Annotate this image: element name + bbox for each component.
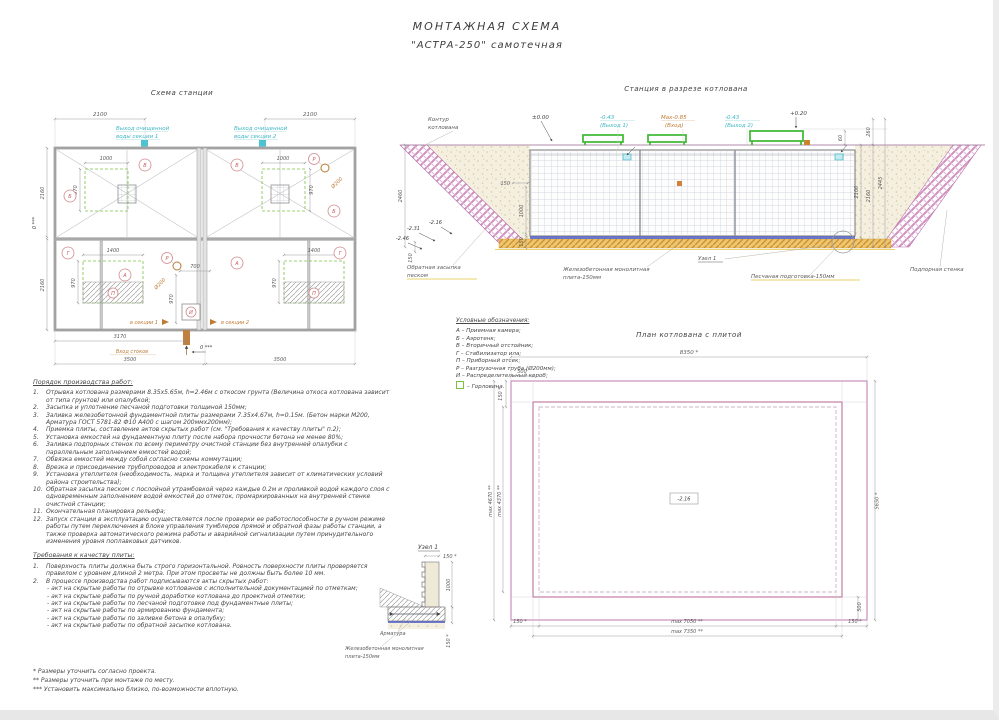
chamber-letter: Б [68,194,72,200]
rebar-label: Арматура [379,631,406,637]
dim-label: 3170 [114,334,127,340]
slab-label2: плита-150мм [563,275,601,281]
dim-label: 150 [408,253,414,263]
legend-title: Условные обозначения: [456,318,598,326]
station-plan-title: Схема станции [82,89,282,97]
work-order-item: 7. Обвязка емкостей между собой согласно… [33,456,395,463]
dim-label: 1000 [519,205,525,218]
footnotes: * Размеры уточнить согласно проекта.** Р… [33,667,433,694]
dim-label: 3500 [274,357,287,363]
covers [583,131,803,145]
inlet-pipe [183,330,190,345]
sheet-title: МОНТАЖНАЯ СХЕМА [287,20,687,33]
item-text: Приемка плиты, составление актов скрытых… [46,426,395,433]
dim-label: 2100 [854,186,860,199]
plan-dim-bottom: 3170 0 *** Вход стоков 3500 3500 [55,330,355,364]
work-order-item: 3. Заливка железобетонной фундаментной п… [33,412,395,427]
manhole-cover [648,135,686,142]
inlet-marker [677,181,682,186]
retaining-wall-label: Подпорная стенка [910,267,964,273]
item-text: Отрывка котлована размерами 8.35х5.65м, … [46,389,395,404]
chamber-letter: А [234,261,239,267]
dim-label: 2160 [40,279,46,292]
item-number: 2. [33,578,46,585]
dim-label: 1400 [308,248,321,254]
dim-label: 970 [309,185,315,195]
dim-label: 1000 [277,156,290,162]
discharge-pipe [321,164,329,172]
item-text: Установка емкостей на фундаментную плиту… [46,434,395,441]
sheet-subtitle: "АСТРА-250" самотечная [287,40,687,51]
work-order-item: 6. Заливка подпорных стенок по всему пер… [33,441,395,456]
foundation-slab [530,236,855,239]
dim-label: 150 * [443,554,457,560]
item-text: Заливка железобетонной фундаментной плит… [46,412,395,427]
station-plan: 2100 2100 Выход очищенной воды секции 1 … [30,103,370,385]
retaining-wall-section [425,562,439,607]
dim-label: max 7350 ** [671,629,703,635]
drawing-sheet: МОНТАЖНАЯ СХЕМА "АСТРА-250" самотечная С… [0,0,999,720]
act-item: - акт на скрытые работы по обратной засы… [47,622,395,629]
item-number: 11. [33,508,46,515]
item-text: Засыпка и уплотнение песчаной подготовки… [46,404,395,411]
station-plan-drawing: 2100 2100 Выход очищенной воды секции 1 … [30,103,370,381]
dim-label: 260 [866,127,872,137]
dim-label: 970 [169,294,175,304]
level-label: -2.16 [429,220,442,226]
footnote: * Размеры уточнить согласно проекта. [33,667,433,676]
node-slab-label: Железобетонная монолитная [344,646,424,652]
dim-label: 150 * [848,619,862,625]
work-order-item: 11. Окончательная планировка рельефа; [33,508,395,515]
level-label: -2.31 [407,226,420,232]
item-number: 4. [33,426,46,433]
pit-plan-drawing: 8350 * 500 150 * max 4670 ** max 4370 **… [490,333,995,668]
footnote: ** Размеры уточнить при монтаже по месту… [33,676,433,685]
dim-label: 2100 [93,112,107,118]
act-item: - акт на скрытые работы по отрывке котло… [47,585,395,592]
act-item: - акт на скрытые работы по заливке бетон… [47,615,395,622]
plan-dim-top: 2100 2100 [55,112,355,146]
dim-label: 970 [71,278,77,288]
contour-label: Контур [428,117,449,123]
dim-label: 8350 * [680,350,699,356]
contour-label2: котлована [428,125,459,131]
work-order-item: 1. Отрывка котлована размерами 8.35х5.65… [33,389,395,404]
outlet2-marker [835,154,843,160]
dim-label: 1000 [100,156,113,162]
item-number: 12. [33,516,46,546]
work-order-list: 1. Отрывка котлована размерами 8.35х5.65… [33,389,395,545]
item-text: Запуск станции в эксплуатацию осуществля… [46,516,395,546]
slab-bottom-line [388,621,445,623]
outlet1-label: Выход очищенной [116,126,170,132]
level-plus020: +0.20 [790,111,807,117]
zero-mark: 0 *** [200,345,213,351]
item-text: В процессе производства работ подписываю… [46,578,395,585]
work-order-item: 9. Установка утеплителя (необходимость, … [33,471,395,486]
work-order-item: 8. Врезка и присоединение трубопроводов … [33,464,395,471]
sand-under-slab [388,623,445,629]
in-name: (Вход) [665,123,684,129]
item-number: 9. [33,471,46,486]
pit-plan: 8350 * 500 150 * max 4670 ** max 4370 **… [490,333,995,672]
item-text: Врезка и присоединение трубопроводов и э… [46,464,395,471]
item-number: 7. [33,456,46,463]
dim-label: 500 [857,602,863,612]
dim-label: 150 [519,237,525,247]
dim-label: 60 [838,135,844,141]
plan-outlets: Выход очищенной воды секции 1 Выход очищ… [116,126,288,149]
cross-section: Контур котлована ±0.00 -0.43 (Выход 1) M… [395,95,995,309]
manhole-swatch [456,381,464,389]
work-order-item: 4. Приемка плиты, составление актов скры… [33,426,395,433]
dim-label: max 4370 ** [497,485,503,517]
section-title: Станция в разрезе котлована [586,85,786,93]
quality-item: 2. В процессе производства работ подписы… [33,578,395,585]
chamber-letter: Р [165,256,168,262]
dim-label: 3500 [124,357,137,363]
work-order-title: Порядок производства работ: [33,379,395,387]
dim-label: 500 [517,369,527,375]
dim-label: 700 [190,264,200,270]
chamber-letter: В [143,163,147,169]
dim-label: 2460 [398,190,404,203]
outlet1-level: -0.43 [600,115,615,121]
chamber-letter: П [111,291,115,297]
backfill-label2: песком [407,273,428,279]
outlet2-level: -0.43 [725,115,740,121]
level-zero: ±0.00 [532,115,549,121]
inlet-stub [804,140,810,145]
node-slab-label2: плита-150мм [345,654,380,660]
act-item: - акт на скрытые работы по армированию ф… [47,607,395,614]
act-item: - акт на скрытые работы по песчаной подг… [47,600,395,607]
sand-prep-label: Песчаная подготовка-150мм [751,274,835,280]
item-number: 5. [33,434,46,441]
chamber-letter: И [189,310,193,316]
dim-label: 150 * [446,634,452,648]
outlet2-name: (Выход 2) [725,123,753,129]
dim-label: 150 * [513,619,527,625]
zero-mark: 0 *** [32,216,38,229]
to-section2-label: в секции 2 [221,320,249,326]
outlet1-label2: воды секции 1 [116,134,158,140]
work-order: Порядок производства работ: 1. Отрывка к… [33,379,395,630]
item-number: 1. [33,563,46,578]
dim-label: max 4670 ** [488,485,494,517]
footnote: *** Установить максимально близко, по-во… [33,685,433,694]
to-section1-label: в секции 1 [130,320,158,326]
backfill-label: Обратная засыпка [407,265,461,271]
dim-label: 1400 [107,248,120,254]
work-order-item: 5. Установка емкостей на фундаментную пл… [33,434,395,441]
item-number: 2. [33,404,46,411]
chamber-letter: П [312,291,316,297]
node1-title: Узел 1 [418,544,438,551]
dim-label: 150 [500,181,510,187]
quality-item: 1. Поверхность плиты должна быть строго … [33,563,395,578]
item-text: Установка утеплителя (необходимость, мар… [46,471,395,486]
chamber-letter: Р [312,157,315,163]
chamber-letter: А [122,273,127,279]
dim-label: 2445 [878,177,884,190]
dim-label: max 7050 ** [671,619,703,625]
cross-section-drawing: Контур котлована ±0.00 -0.43 (Выход 1) M… [395,95,995,305]
item-text: Заливка подпорных стенок по всему периме… [46,441,395,456]
slab-label: Железобетонная монолитная [562,267,650,273]
work-order-item: 2. Засыпка и уплотнение песчаной подгото… [33,404,395,411]
item-number: 8. [33,464,46,471]
plan-dim-left: 2160 2160 0 *** [32,148,47,330]
in-level: Max-0.85 [661,115,687,121]
dim-label: 970 [272,278,278,288]
chamber-letter: В [235,163,239,169]
dim-label: 150 * [498,387,504,401]
dim-label: 2100 [303,112,317,118]
acts-list: - акт на скрытые работы по отрывке котло… [47,585,395,630]
level-label: -2.16 [678,497,691,503]
work-order-item: 10. Обратная засыпка песком с послойной … [33,486,395,508]
dim-label: 2160 [40,187,46,200]
work-order-item: 12. Запуск станции в эксплуатацию осущес… [33,516,395,546]
outlet2-label: Выход очищенной [234,126,288,132]
manhole-cover [583,135,623,142]
dim-label: 5650 * [875,492,881,509]
item-number: 1. [33,389,46,404]
wall-profile [422,562,425,607]
discharge-pipe [173,262,181,270]
manhole-cover [750,131,803,141]
chamber-letter: Б [332,209,336,215]
dim-label: 1000 [446,579,452,592]
inlet-label: Вход стоков [116,349,148,355]
item-text: Обратная засыпка песком с послойной утра… [46,486,395,508]
item-number: 10. [33,486,46,508]
item-number: 6. [33,441,46,456]
item-number: 3. [33,412,46,427]
outlet1-name: (Выход 1) [600,123,628,129]
tank [530,150,855,239]
node-ref-label: Узел 1 [698,256,716,262]
item-text: Окончательная планировка рельефа; [46,508,395,515]
dim-label: 2160 [866,190,872,203]
item-text: Поверхность плиты должна быть строго гор… [46,563,395,578]
level-label: -2.46 [396,236,409,242]
outlet2-label2: воды секции 2 [234,134,277,140]
quality-title: Требования к качеству плиты: [33,552,395,560]
act-item: - акт на скрытые работы по ручной дорабо… [47,593,395,600]
item-text: Обвязка емкостей между собой согласно сх… [46,456,395,463]
